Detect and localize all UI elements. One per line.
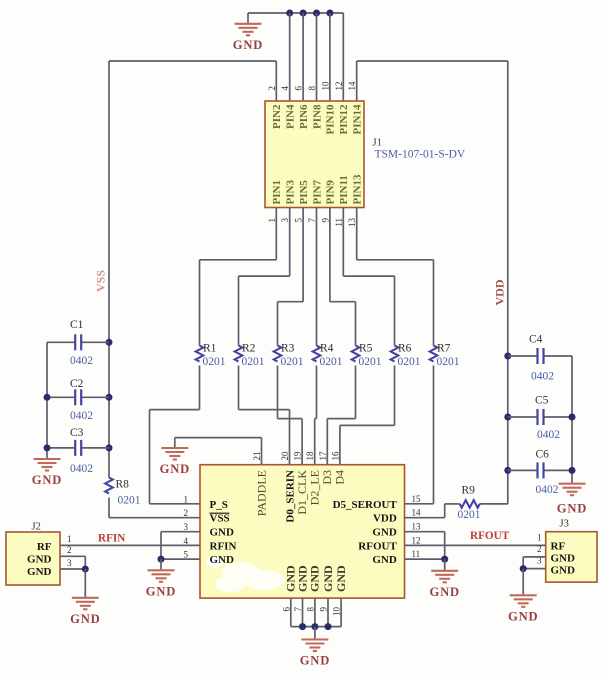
svg-text:0201: 0201 xyxy=(320,356,343,368)
svg-text:9: 9 xyxy=(320,218,330,223)
svg-text:11: 11 xyxy=(412,549,421,559)
svg-text:GND: GND xyxy=(551,553,576,565)
svg-text:D5_SEROUT: D5_SEROUT xyxy=(333,499,398,511)
svg-text:0201: 0201 xyxy=(242,356,265,368)
svg-text:0201: 0201 xyxy=(398,356,421,368)
svg-text:RFIN: RFIN xyxy=(98,533,125,545)
svg-text:J3: J3 xyxy=(560,519,569,530)
svg-text:C4: C4 xyxy=(529,334,543,346)
svg-text:VDD: VDD xyxy=(373,513,397,525)
svg-text:GND: GND xyxy=(70,612,100,626)
svg-text:16: 16 xyxy=(330,451,340,461)
svg-text:0201: 0201 xyxy=(203,356,226,368)
svg-text:1: 1 xyxy=(267,218,277,223)
svg-text:PIN6: PIN6 xyxy=(298,104,310,129)
svg-text:RFIN: RFIN xyxy=(210,540,237,552)
svg-text:R1: R1 xyxy=(203,343,217,355)
svg-text:VSS: VSS xyxy=(94,270,108,292)
svg-text:9: 9 xyxy=(319,607,329,612)
svg-text:0201: 0201 xyxy=(437,356,460,368)
svg-text:0402: 0402 xyxy=(70,410,93,422)
svg-text:C2: C2 xyxy=(70,378,84,390)
svg-text:RF: RF xyxy=(551,541,566,553)
svg-text:11: 11 xyxy=(334,218,344,227)
svg-text:C5: C5 xyxy=(535,395,549,407)
svg-text:6: 6 xyxy=(294,86,304,91)
svg-text:PIN14: PIN14 xyxy=(352,104,364,134)
svg-text:GND: GND xyxy=(210,527,235,539)
svg-text:GND: GND xyxy=(233,38,263,52)
svg-text:19: 19 xyxy=(293,451,303,461)
svg-text:7: 7 xyxy=(293,607,303,612)
svg-text:13: 13 xyxy=(412,522,422,532)
svg-text:0201: 0201 xyxy=(359,356,382,368)
svg-text:2: 2 xyxy=(537,544,542,554)
svg-text:RF: RF xyxy=(37,541,52,553)
svg-text:J2: J2 xyxy=(32,522,41,533)
svg-text:0402: 0402 xyxy=(536,484,559,496)
svg-text:17: 17 xyxy=(318,451,328,461)
svg-text:R8: R8 xyxy=(116,479,130,491)
svg-text:D4: D4 xyxy=(333,470,347,485)
svg-text:1: 1 xyxy=(537,532,542,542)
svg-text:GND: GND xyxy=(372,527,397,539)
svg-text:GND: GND xyxy=(32,473,62,487)
svg-text:PIN10: PIN10 xyxy=(325,104,337,134)
svg-text:GND: GND xyxy=(160,462,190,476)
svg-text:GND: GND xyxy=(334,565,348,592)
svg-text:RFOUT: RFOUT xyxy=(470,530,510,542)
svg-text:PIN1: PIN1 xyxy=(271,180,283,204)
svg-text:R6: R6 xyxy=(398,343,412,355)
svg-text:GND: GND xyxy=(321,565,335,592)
svg-text:P_S: P_S xyxy=(210,499,228,511)
svg-text:R3: R3 xyxy=(281,343,295,355)
svg-text:R2: R2 xyxy=(242,343,256,355)
svg-text:R7: R7 xyxy=(437,343,451,355)
svg-text:10: 10 xyxy=(320,81,330,91)
svg-text:GND: GND xyxy=(557,502,587,516)
svg-text:C1: C1 xyxy=(70,319,84,331)
svg-text:R4: R4 xyxy=(320,343,334,355)
svg-text:GND: GND xyxy=(27,553,52,565)
svg-text:5: 5 xyxy=(184,550,189,560)
svg-text:2: 2 xyxy=(184,508,189,518)
svg-text:PADDLE: PADDLE xyxy=(254,470,268,516)
svg-text:PIN2: PIN2 xyxy=(271,104,283,129)
svg-text:12: 12 xyxy=(334,82,344,91)
svg-text:PIN5: PIN5 xyxy=(298,180,310,205)
svg-text:1: 1 xyxy=(67,534,72,544)
svg-text:0402: 0402 xyxy=(70,463,93,475)
svg-text:PIN4: PIN4 xyxy=(285,104,297,129)
svg-text:GND: GND xyxy=(300,654,330,668)
svg-text:15: 15 xyxy=(412,494,422,504)
svg-text:0402: 0402 xyxy=(70,355,93,367)
svg-text:3: 3 xyxy=(280,218,290,223)
svg-text:C6: C6 xyxy=(536,449,550,461)
svg-text:VDD: VDD xyxy=(493,279,507,305)
svg-text:C3: C3 xyxy=(70,427,84,439)
svg-text:5: 5 xyxy=(294,218,304,223)
svg-text:RFOUT: RFOUT xyxy=(358,540,397,552)
svg-text:4: 4 xyxy=(184,536,189,546)
svg-text:12: 12 xyxy=(412,535,421,545)
svg-text:GND: GND xyxy=(372,554,397,566)
svg-text:0402: 0402 xyxy=(531,371,554,383)
svg-text:10: 10 xyxy=(332,607,342,617)
svg-text:GND: GND xyxy=(210,554,235,566)
svg-text:GND: GND xyxy=(146,584,176,598)
svg-text:J1: J1 xyxy=(373,138,382,149)
svg-text:GND: GND xyxy=(308,565,322,592)
svg-text:0402: 0402 xyxy=(537,429,560,441)
svg-text:R9: R9 xyxy=(462,485,476,497)
svg-text:GND: GND xyxy=(27,566,52,578)
svg-text:VSS: VSS xyxy=(210,513,230,525)
svg-text:13: 13 xyxy=(347,218,357,228)
svg-text:R5: R5 xyxy=(359,343,373,355)
svg-text:0201: 0201 xyxy=(118,495,141,507)
svg-text:3: 3 xyxy=(67,558,72,568)
svg-text:8: 8 xyxy=(307,86,317,91)
svg-text:6: 6 xyxy=(281,607,291,612)
svg-text:20: 20 xyxy=(280,451,290,461)
svg-text:4: 4 xyxy=(280,86,290,91)
svg-text:PIN12: PIN12 xyxy=(338,104,350,134)
svg-text:0201: 0201 xyxy=(281,356,304,368)
svg-text:GND: GND xyxy=(508,609,538,623)
svg-text:18: 18 xyxy=(305,451,315,461)
svg-text:14: 14 xyxy=(347,81,357,91)
svg-text:PIN9: PIN9 xyxy=(325,180,337,205)
svg-text:7: 7 xyxy=(307,218,317,223)
svg-text:2: 2 xyxy=(267,86,277,91)
svg-text:PIN7: PIN7 xyxy=(311,180,323,205)
svg-text:14: 14 xyxy=(412,508,422,518)
svg-text:0201: 0201 xyxy=(458,509,481,521)
svg-text:TSM-107-01-S-DV: TSM-107-01-S-DV xyxy=(375,149,466,161)
svg-text:GND: GND xyxy=(430,585,460,599)
svg-text:GND: GND xyxy=(551,564,576,576)
svg-text:3: 3 xyxy=(184,522,189,532)
svg-text:PIN8: PIN8 xyxy=(311,104,323,129)
svg-text:PIN11: PIN11 xyxy=(338,175,350,204)
svg-text:2: 2 xyxy=(67,545,72,555)
svg-text:1: 1 xyxy=(184,494,189,504)
svg-text:8: 8 xyxy=(305,607,315,612)
svg-text:PIN13: PIN13 xyxy=(352,174,364,204)
svg-text:21: 21 xyxy=(252,452,262,461)
svg-text:PIN3: PIN3 xyxy=(285,180,297,205)
